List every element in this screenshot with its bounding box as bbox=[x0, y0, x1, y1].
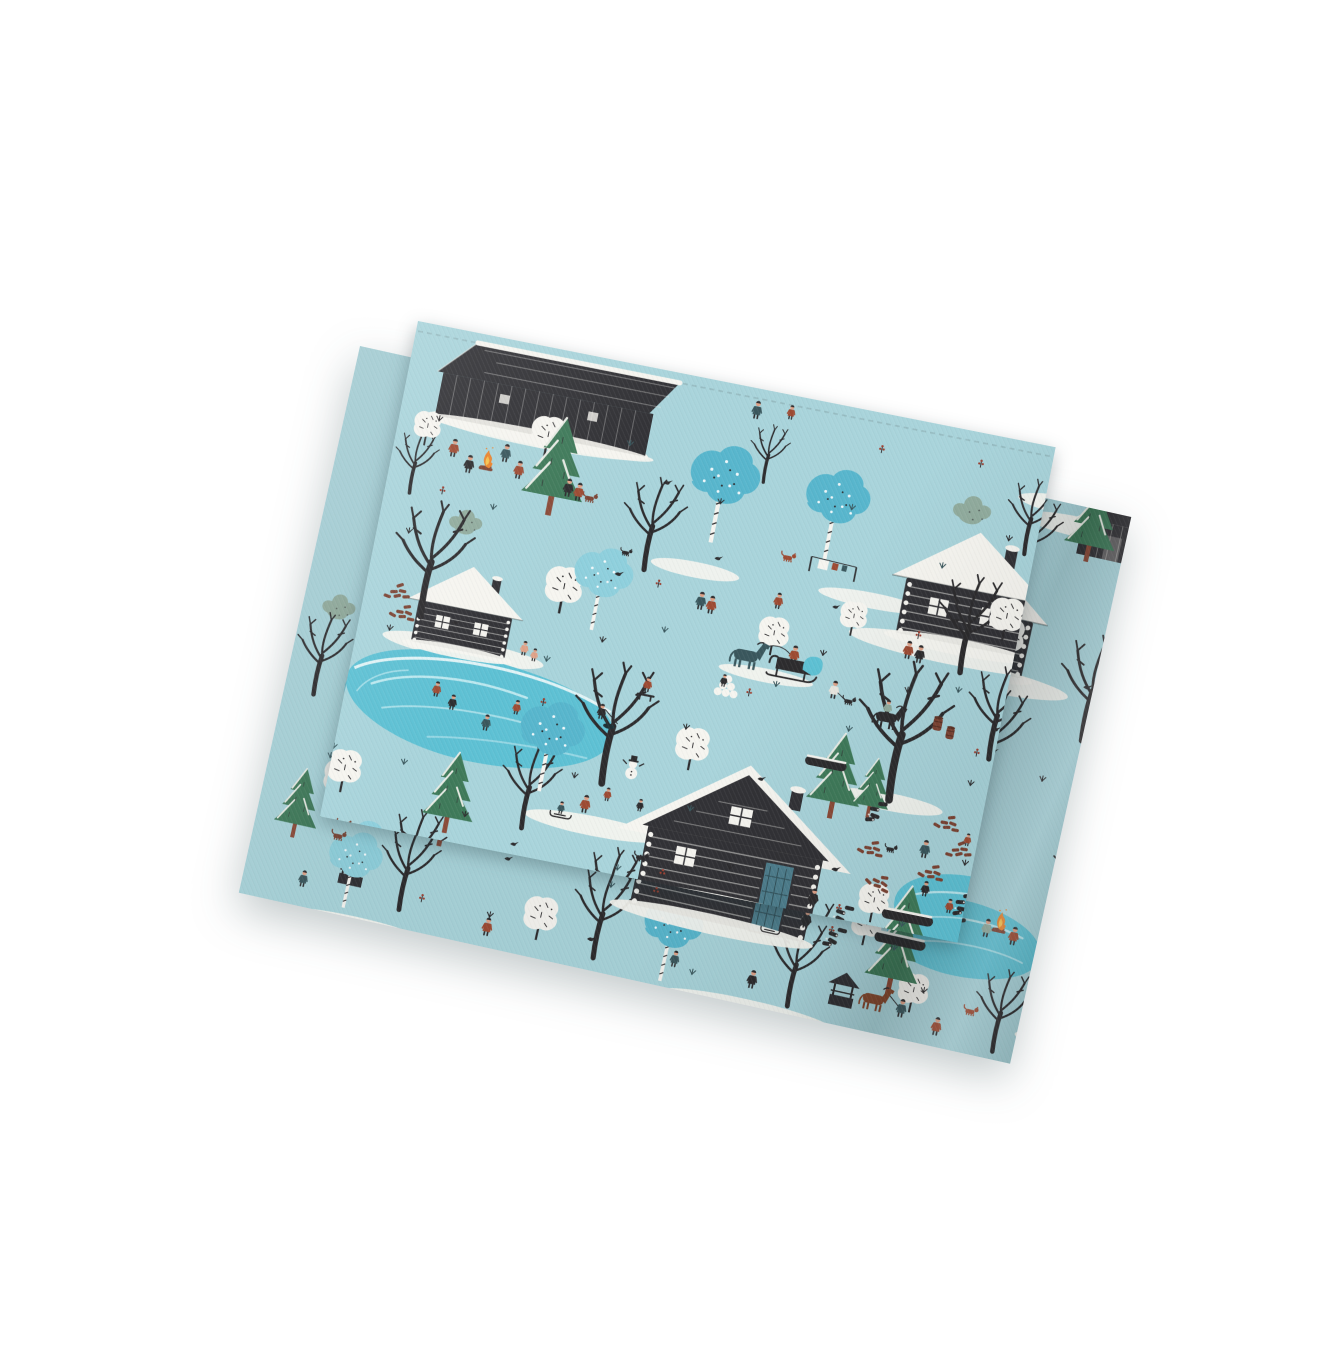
product-photo: Folded light-blue tea towel printed with… bbox=[40, 16, 1320, 1336]
